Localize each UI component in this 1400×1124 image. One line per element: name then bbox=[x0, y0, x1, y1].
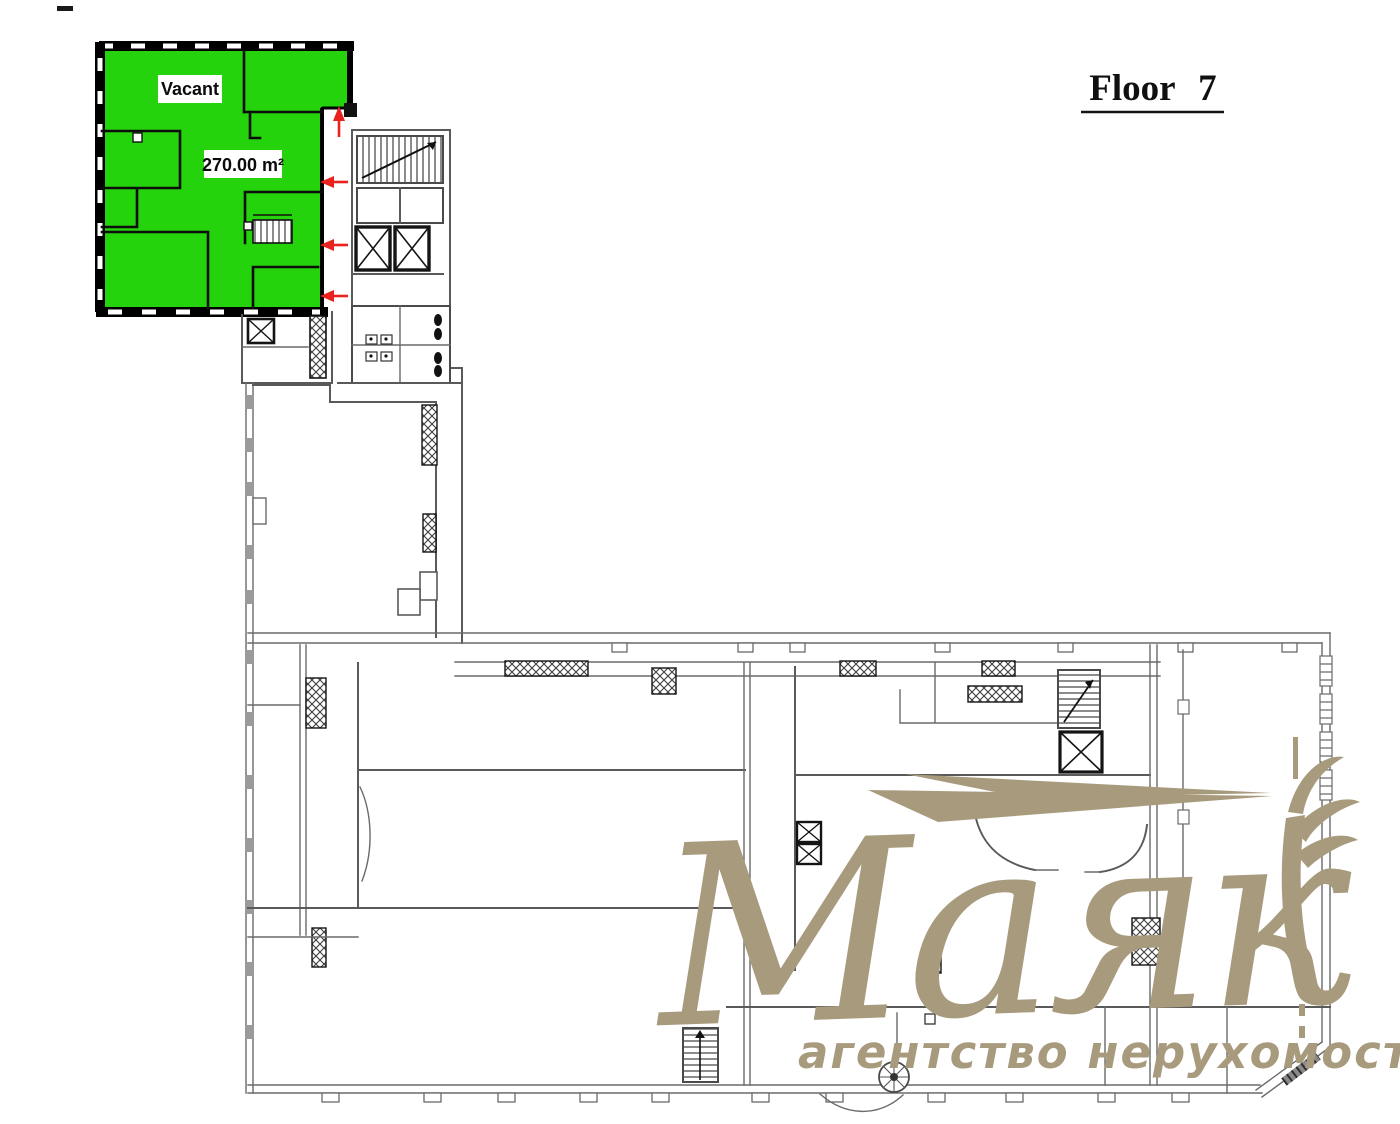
shaft-hatch bbox=[423, 514, 436, 552]
floor-title-block: Floor 7 bbox=[1081, 68, 1224, 112]
shaft-hatch bbox=[422, 405, 437, 465]
ne-staircase-icon bbox=[1058, 670, 1100, 728]
door-swing-arc bbox=[360, 787, 370, 881]
vacant-area-label: 270.00 m² bbox=[202, 155, 284, 175]
watermark: Маяк агентство нерухомості bbox=[648, 737, 1400, 1084]
shaft-hatch bbox=[505, 661, 588, 676]
ne-elevator-icon bbox=[1060, 732, 1102, 772]
left-exterior-wall bbox=[245, 383, 266, 1093]
entry-arrow-up bbox=[333, 106, 345, 137]
floor-plan-page: Vacant 270.00 m² bbox=[0, 0, 1400, 1124]
wall-niche bbox=[420, 572, 437, 600]
watermark-tagline: агентство нерухомості bbox=[798, 1026, 1400, 1079]
elevator-icon bbox=[395, 227, 429, 270]
shaft-hatch bbox=[652, 668, 676, 694]
scan-artifact-mark bbox=[57, 6, 73, 11]
shaft-hatch bbox=[840, 661, 876, 676]
vacant-area-highlight bbox=[102, 50, 350, 308]
elevator-icon bbox=[356, 227, 390, 270]
entry-arrow-left bbox=[320, 239, 348, 251]
shaft-hatch bbox=[310, 316, 326, 378]
entry-arrow-left bbox=[320, 290, 348, 302]
vertical-wing bbox=[245, 383, 462, 1093]
shaft-hatch bbox=[312, 928, 326, 967]
toilets-block bbox=[352, 306, 450, 383]
floor-plan-drawing: Vacant 270.00 m² bbox=[0, 0, 1400, 1124]
shaft-hatch bbox=[982, 661, 1015, 676]
main-staircase-icon bbox=[357, 136, 443, 183]
lower-extension bbox=[242, 312, 332, 383]
entry-arrows bbox=[320, 106, 348, 302]
door-marker bbox=[244, 222, 252, 230]
small-elevator-icon bbox=[248, 319, 274, 343]
door-marker bbox=[133, 133, 142, 142]
wall-niche bbox=[398, 589, 420, 615]
shaft-hatch bbox=[968, 686, 1022, 702]
vacant-label: Vacant bbox=[161, 79, 219, 99]
wall-pilaster bbox=[253, 498, 266, 524]
upper-wing: Vacant 270.00 m² bbox=[96, 42, 462, 385]
floor-title: Floor 7 bbox=[1089, 68, 1216, 109]
north-room bbox=[253, 385, 437, 637]
entry-arrow-left bbox=[320, 176, 348, 188]
service-core bbox=[338, 130, 462, 385]
shaft-hatch bbox=[306, 678, 326, 728]
